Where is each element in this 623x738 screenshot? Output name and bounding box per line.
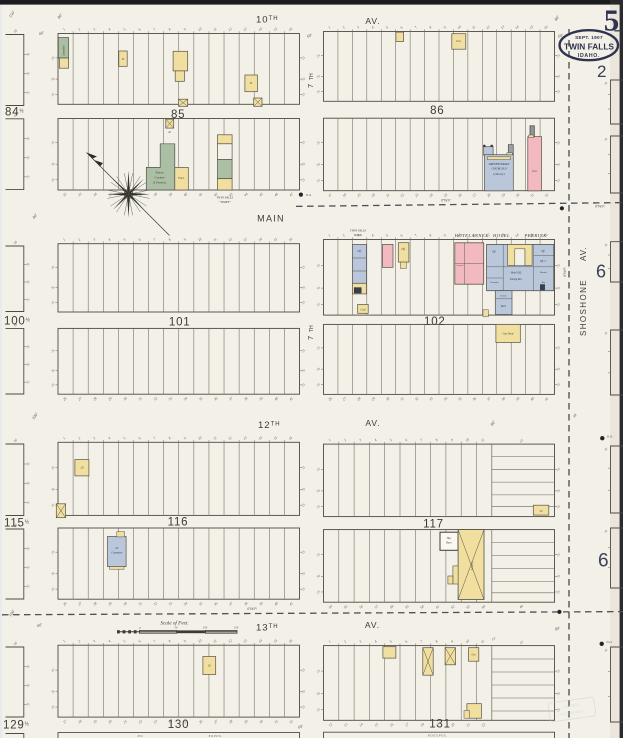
svg-text:TWIN FALLS: TWIN FALLS xyxy=(564,42,614,52)
svg-text:100: 100 xyxy=(203,626,208,630)
svg-text:Gas Shed: Gas Shed xyxy=(503,333,514,336)
svg-text:Barn: Barn xyxy=(501,305,507,308)
svg-text:TWIN FALLS: TWIN FALLS xyxy=(217,196,234,200)
svg-text:E X P O S.: E X P O S. xyxy=(208,734,222,738)
svg-text:Barber: Barber xyxy=(540,271,547,274)
svg-text:AV.: AV. xyxy=(365,16,380,26)
svg-text:86: 86 xyxy=(430,105,444,117)
svg-text:CHURCH D: CHURCH D xyxy=(491,167,507,171)
svg-text:N O E X P O S.: N O E X P O S. xyxy=(427,733,447,737)
svg-text:BANK: BANK xyxy=(354,233,363,237)
svg-text:6: 6 xyxy=(596,262,606,282)
svg-text:Off.: Off. xyxy=(541,250,546,253)
svg-text:150: 150 xyxy=(234,626,239,630)
svg-text:Laundry: Laundry xyxy=(62,45,66,57)
svg-text:Barn: Barn xyxy=(446,542,452,545)
svg-text:2: 2 xyxy=(597,62,606,81)
svg-text:D.H.: D.H. xyxy=(607,640,613,644)
svg-text:Coal: Coal xyxy=(360,309,365,312)
svg-text:101: 101 xyxy=(169,316,191,328)
svg-text:6″W.P.: 6″W.P. xyxy=(441,199,451,203)
svg-text:HOTEL: HOTEL xyxy=(492,233,510,238)
svg-text:PRESBYTERIAN: PRESBYTERIAN xyxy=(488,162,511,166)
svg-text:130: 130 xyxy=(168,719,190,731)
svg-text:Crockery: Crockery xyxy=(154,176,165,180)
svg-text:102: 102 xyxy=(424,316,446,328)
svg-text:Pantry: Pantry xyxy=(499,295,507,298)
svg-text:Off.: Off. xyxy=(357,250,362,253)
svg-text:Off. C: Off. C xyxy=(540,260,547,263)
svg-text:Gro.: Gro. xyxy=(532,169,538,173)
svg-text:D.H.: D.H. xyxy=(306,193,312,197)
svg-text:Dining Rm.: Dining Rm. xyxy=(509,278,523,281)
svg-text:Laundry: Laundry xyxy=(489,281,499,284)
svg-text:SHOSHONE: SHOSHONE xyxy=(579,279,588,336)
svg-text:HOTEL: HOTEL xyxy=(454,233,472,238)
svg-text:6″W.P.: 6″W.P. xyxy=(247,607,257,611)
svg-text:TH: TH xyxy=(309,325,315,332)
svg-text:6″W.P.: 6″W.P. xyxy=(563,267,567,277)
svg-text:TH: TH xyxy=(309,73,315,80)
svg-text:1 (Stoves) 1: 1 (Stoves) 1 xyxy=(493,173,506,176)
svg-text:IDAHO.: IDAHO. xyxy=(578,53,600,59)
svg-text:AV.: AV. xyxy=(579,246,588,261)
svg-text:117: 117 xyxy=(423,518,444,530)
svg-text:Pianos: Pianos xyxy=(154,171,164,175)
svg-text:6: 6 xyxy=(598,551,609,572)
svg-text:131: 131 xyxy=(429,719,451,731)
svg-text:PERRINE: PERRINE xyxy=(523,233,546,238)
svg-text:SEPT. 1907: SEPT. 1907 xyxy=(575,35,603,40)
svg-text:7: 7 xyxy=(306,336,315,340)
svg-text:N O: N O xyxy=(137,734,144,738)
svg-text:20: 20 xyxy=(81,466,85,470)
svg-text:D.H.: D.H. xyxy=(607,435,613,439)
svg-text:AV.: AV. xyxy=(365,620,380,630)
svg-text:Bar: Bar xyxy=(542,281,546,284)
svg-text:6″W.P.: 6″W.P. xyxy=(595,204,605,208)
svg-text:7: 7 xyxy=(306,84,315,88)
svg-text:Livery: Livery xyxy=(470,561,474,571)
svg-text:50: 50 xyxy=(175,626,179,630)
svg-text:AV.: AV. xyxy=(365,418,380,428)
svg-text:Gro: Gro xyxy=(471,654,476,657)
svg-text:20: 20 xyxy=(208,664,212,668)
svg-text:Gro.: Gro. xyxy=(456,39,462,43)
svg-text:Off.: Off. xyxy=(492,251,497,254)
svg-text:40: 40 xyxy=(168,130,172,134)
svg-text:Sample: Sample xyxy=(456,264,464,267)
svg-text:Furn.: Furn. xyxy=(177,176,185,180)
svg-text:ANNEX: ANNEX xyxy=(471,233,489,238)
svg-text:Off.: Off. xyxy=(401,248,406,251)
svg-text:Creamery: Creamery xyxy=(111,552,123,555)
svg-text:& Plumb’g: & Plumb’g xyxy=(153,181,166,185)
svg-text:116: 116 xyxy=(168,517,189,529)
svg-text:Hotel Off.: Hotel Off. xyxy=(510,272,522,275)
svg-text:“TIMES”: “TIMES” xyxy=(219,199,231,204)
svg-text:MAIN: MAIN xyxy=(257,214,285,224)
svg-text:Hay: Hay xyxy=(446,537,452,540)
